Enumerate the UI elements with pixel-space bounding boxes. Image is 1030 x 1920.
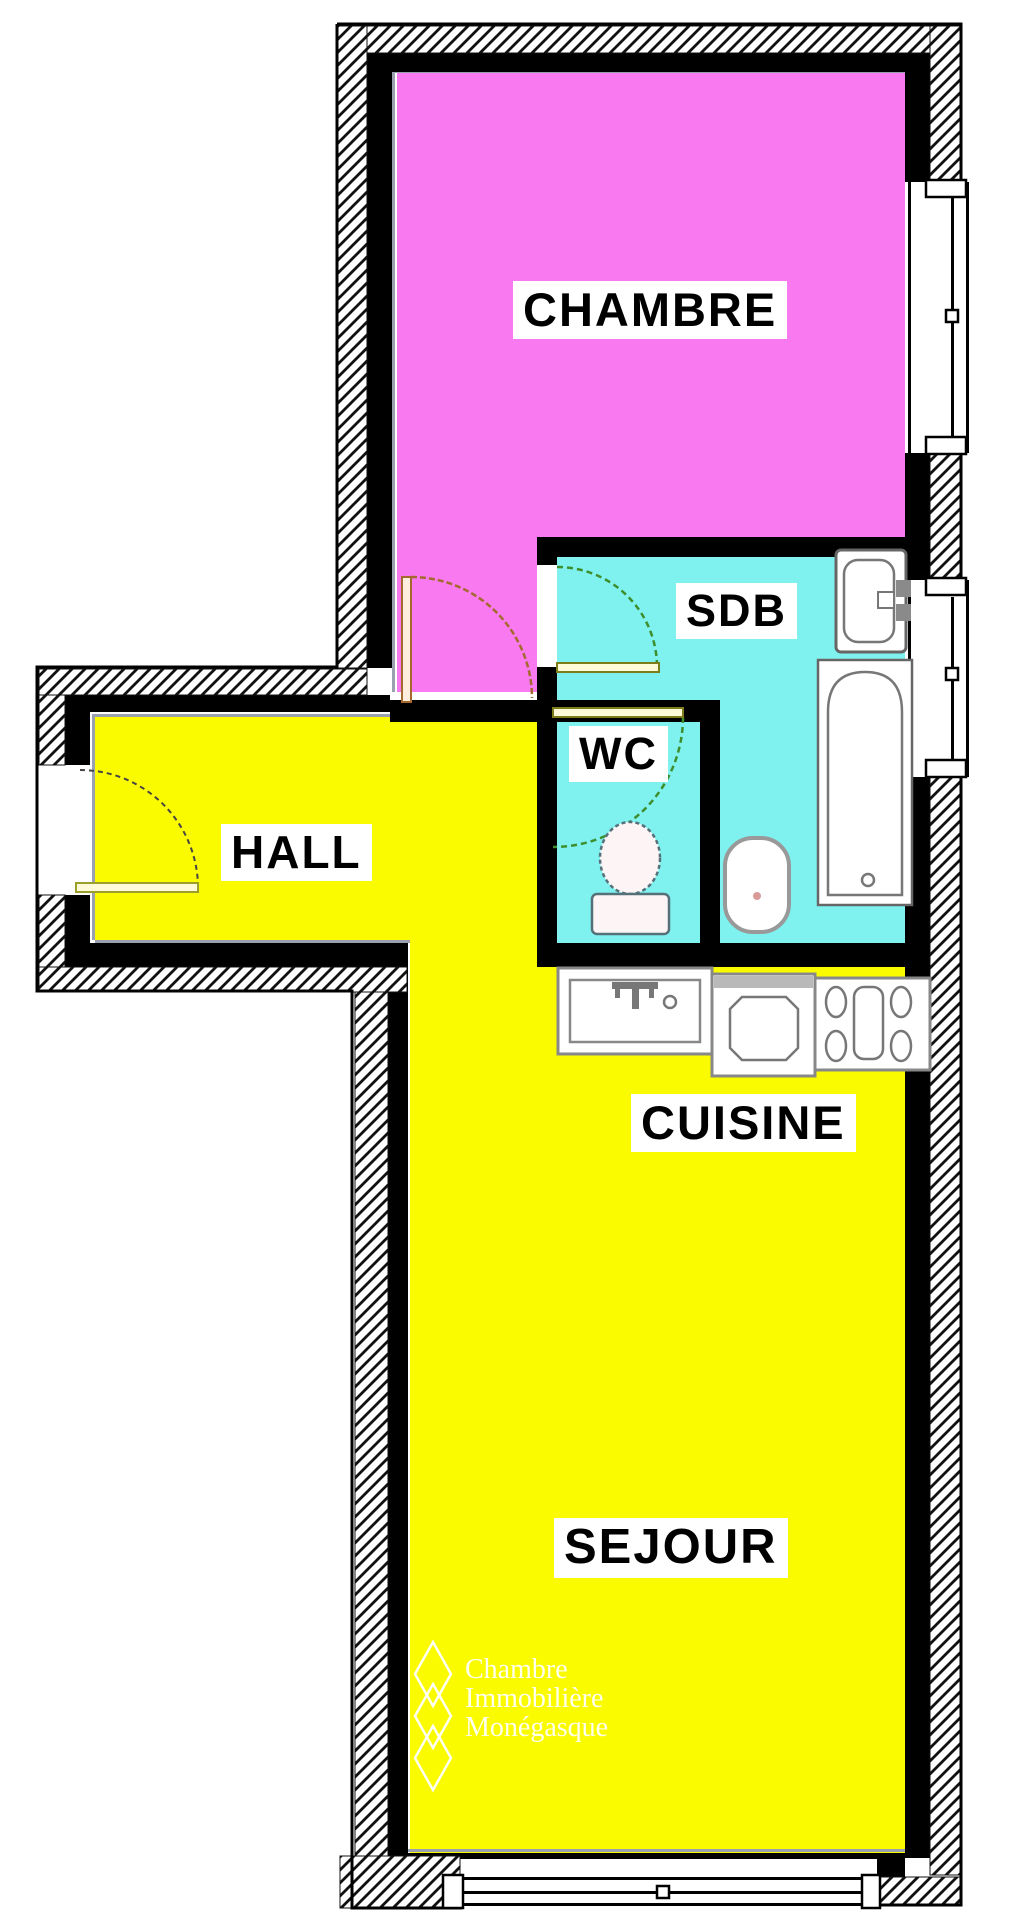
cooktop — [815, 978, 930, 1070]
room-label-sdb: SDB — [676, 583, 797, 639]
room-label-cuisine: CUISINE — [631, 1094, 856, 1152]
bidet — [725, 838, 789, 932]
room-label-sejour: SEJOUR — [554, 1518, 788, 1578]
floor-plan: CHAMBRE SDB WC HALL CUISINE SEJOUR Chamb… — [0, 0, 1030, 1920]
watermark-line: Monégasque — [465, 1713, 608, 1742]
room-label-hall: HALL — [221, 824, 372, 881]
room-label-wc: WC — [569, 726, 668, 782]
oven — [712, 974, 815, 1076]
kitchen-sink — [558, 968, 712, 1054]
washbasin — [836, 550, 911, 652]
sejour-window — [443, 1875, 880, 1908]
watermark-line: Chambre — [465, 1655, 608, 1684]
room-label-chambre: CHAMBRE — [513, 281, 787, 339]
watermark-text: Chambre Immobilière Monégasque — [465, 1655, 608, 1742]
chambre-window — [908, 180, 969, 454]
watermark-line: Immobilière — [465, 1684, 608, 1713]
sdb-window — [908, 578, 969, 777]
bathtub — [818, 660, 912, 905]
